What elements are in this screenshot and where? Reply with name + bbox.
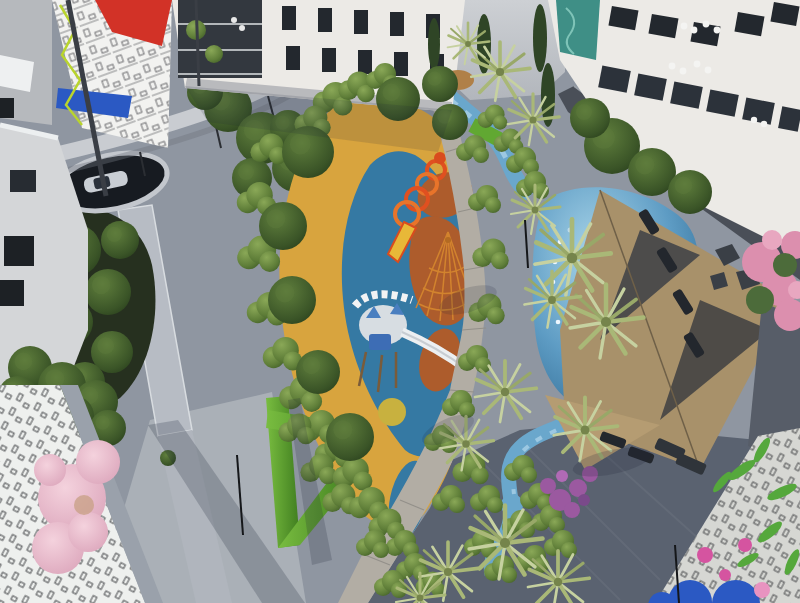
balcony-recess [178, 0, 262, 78]
courtyard-render [0, 0, 800, 603]
pink-tree-trunk [74, 495, 94, 515]
yellow-foliage-tree [378, 398, 406, 426]
teal-mural-strip [556, 0, 600, 60]
